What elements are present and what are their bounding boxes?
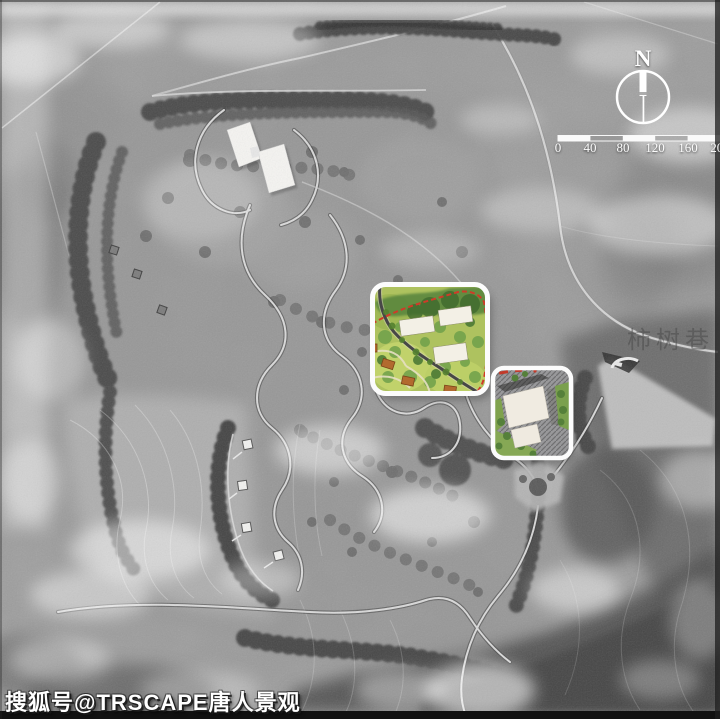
photo-grain xyxy=(0,0,720,719)
north-arrow-icon xyxy=(617,71,669,123)
map-artwork xyxy=(0,0,720,719)
place-name-label: 柿树巷 xyxy=(627,320,714,355)
detail-inset-buildings xyxy=(491,366,574,463)
detail-inset-landscape xyxy=(368,282,492,400)
site-plan-map: N 0 40 80 120 160 200 柿树巷 搜狐号@TRSCAPE唐人景… xyxy=(0,0,720,719)
watermark-text: 搜狐号@TRSCAPE唐人景观 xyxy=(5,685,301,717)
scale-tick-200: 200 xyxy=(700,140,720,156)
north-label: N xyxy=(629,46,657,72)
